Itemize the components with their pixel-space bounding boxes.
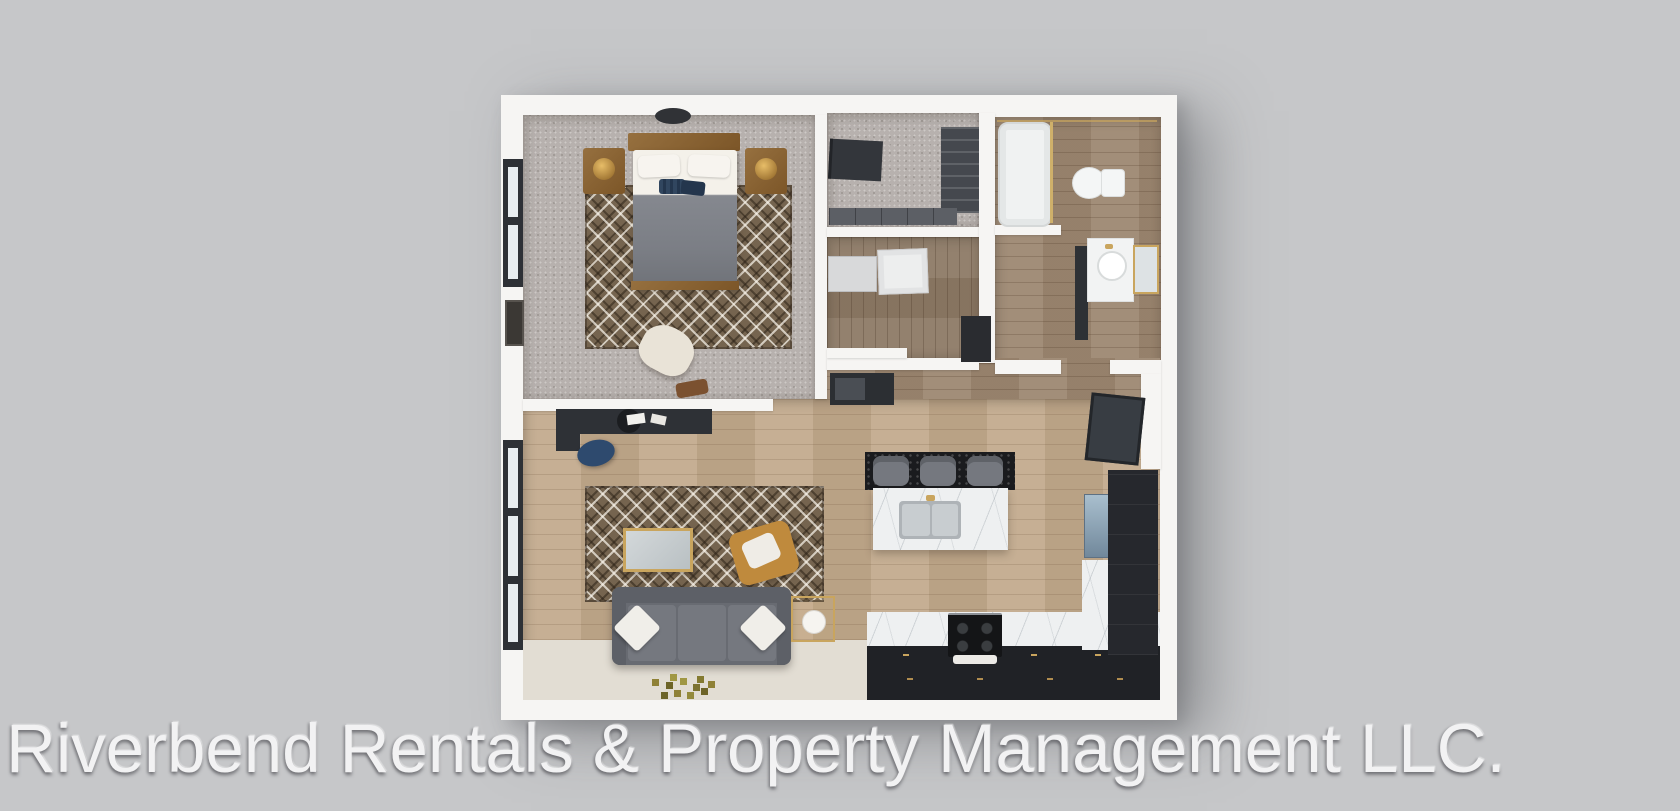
nook-cabinet: [835, 378, 865, 400]
utility-cabinet: [961, 316, 991, 362]
oven-towel: [953, 655, 997, 664]
washer: [877, 248, 929, 295]
bar-stool: [967, 456, 1003, 486]
bar-stool: [920, 456, 956, 486]
wall-bedroom-right: [815, 115, 827, 399]
shower-glass-panel: [1050, 122, 1053, 223]
tall-cabinets-right: [1108, 470, 1158, 655]
wall-laundry-bottom: [827, 358, 979, 370]
chair-pillow: [740, 531, 782, 570]
sofa-back: [612, 587, 791, 603]
floor-mosaic-tiles: [652, 679, 659, 686]
toilet-tank: [1101, 169, 1125, 197]
bathtub: [998, 122, 1052, 227]
coffee-table: [623, 528, 693, 572]
window-pane: [508, 516, 518, 576]
sink-bowl: [932, 504, 958, 536]
closet-shelving: [941, 127, 979, 213]
wall-right-niche: [1141, 374, 1161, 469]
sofa: [612, 587, 791, 665]
bar-stool: [873, 456, 909, 486]
bed-pillow: [687, 154, 730, 178]
wall-art: [505, 300, 524, 346]
window-pane: [508, 448, 518, 508]
desk-return: [556, 409, 580, 451]
wall-closet-bottom: [827, 227, 979, 237]
table-lamp: [593, 158, 615, 180]
wall-hall-stub: [827, 348, 907, 358]
island-double-sink: [899, 501, 961, 539]
sofa-cushion: [678, 605, 726, 661]
dryer: [828, 256, 877, 292]
window-pane: [508, 167, 518, 217]
cabinet-handles: [873, 678, 1156, 680]
island-faucet: [926, 495, 935, 501]
accent-pillow: [680, 180, 705, 196]
closet-wardrobe: [828, 139, 883, 182]
vanity-faucet: [1105, 244, 1113, 249]
ceiling-light: [655, 108, 691, 124]
bed-pillow: [637, 154, 680, 178]
floorplan-render: [501, 95, 1177, 720]
window-pane: [508, 584, 518, 642]
table-lamp: [755, 158, 777, 180]
wall-bathroom-bottom-left: [995, 360, 1061, 374]
table-lamp: [802, 610, 826, 634]
closet-low-cabinets: [829, 208, 957, 225]
hall-closet-nook: [830, 373, 894, 405]
sink-basin: [1097, 251, 1127, 281]
bed-headboard: [628, 133, 740, 151]
range-stove: [948, 613, 1002, 657]
wall-bathroom-bottom-right: [1110, 360, 1161, 374]
corner-counter: [1082, 560, 1110, 650]
gold-mirror: [1133, 245, 1159, 294]
bed-footboard: [631, 281, 739, 290]
leaning-mirror: [1085, 392, 1146, 465]
watermark-text: Riverbend Rentals & Property Management …: [6, 714, 1506, 783]
bedroom-window: [503, 159, 523, 287]
sink-bowl: [902, 504, 930, 536]
living-window: [503, 440, 523, 650]
screenshot-root: { "watermark": { "text": "Riverbend Rent…: [0, 0, 1680, 811]
side-table-gold: [791, 596, 835, 642]
window-pane: [508, 225, 518, 279]
